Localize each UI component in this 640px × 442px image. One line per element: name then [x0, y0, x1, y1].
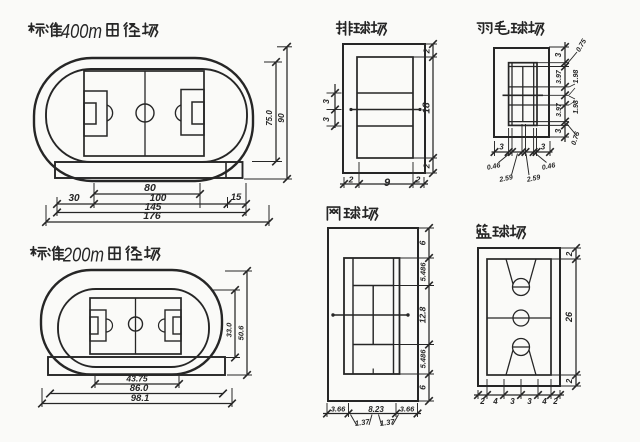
svg-text:1.37: 1.37	[379, 417, 396, 428]
svg-text:3.97: 3.97	[556, 102, 563, 117]
svg-text:1.37: 1.37	[354, 417, 371, 428]
svg-text:30: 30	[68, 193, 80, 204]
svg-text:2: 2	[552, 397, 558, 406]
svg-text:3: 3	[499, 143, 504, 152]
svg-text:3: 3	[321, 117, 331, 122]
svg-text:3.97: 3.97	[556, 69, 563, 84]
svg-text:176: 176	[143, 210, 161, 222]
svg-text:26: 26	[564, 311, 574, 323]
svg-text:2: 2	[348, 175, 354, 185]
svg-text:2: 2	[415, 175, 421, 185]
svg-text:12.8: 12.8	[418, 306, 428, 323]
svg-text:8.23: 8.23	[368, 405, 384, 414]
svg-text:1.98: 1.98	[573, 100, 580, 114]
svg-text:98.1: 98.1	[131, 393, 150, 404]
svg-text:3: 3	[321, 99, 331, 104]
svg-text:1.98: 1.98	[573, 70, 580, 84]
svg-text:3: 3	[554, 52, 563, 57]
svg-text:3: 3	[527, 397, 532, 406]
svg-text:2.59: 2.59	[498, 174, 514, 184]
svg-text:2.59: 2.59	[525, 174, 541, 184]
svg-text:18: 18	[422, 102, 433, 114]
svg-text:43.75: 43.75	[125, 374, 148, 384]
svg-text:5.486: 5.486	[419, 262, 428, 282]
svg-text:75.0: 75.0	[265, 110, 274, 126]
svg-text:6: 6	[418, 385, 428, 390]
svg-text:4: 4	[541, 397, 547, 406]
svg-text:6: 6	[418, 240, 428, 245]
svg-text:0.75: 0.75	[571, 131, 582, 146]
svg-text:2: 2	[565, 251, 574, 257]
svg-text:2: 2	[479, 397, 485, 406]
svg-text:0.46: 0.46	[541, 162, 556, 172]
svg-text:3: 3	[510, 397, 515, 406]
svg-text:90: 90	[276, 113, 286, 123]
svg-text:3.66: 3.66	[400, 405, 415, 414]
svg-text:33.0: 33.0	[225, 322, 234, 337]
svg-text:2: 2	[422, 48, 432, 54]
svg-text:3: 3	[541, 143, 546, 152]
svg-text:2: 2	[565, 378, 574, 384]
svg-text:200m: 200m	[62, 245, 104, 267]
svg-text:0.75: 0.75	[575, 38, 588, 53]
svg-text:9: 9	[384, 177, 391, 189]
svg-text:50.6: 50.6	[237, 325, 246, 340]
svg-text:15: 15	[231, 192, 242, 203]
svg-text:4: 4	[492, 397, 498, 406]
svg-text:5.486: 5.486	[419, 349, 428, 369]
svg-text:0.46: 0.46	[486, 162, 501, 172]
svg-text:2: 2	[422, 163, 432, 169]
svg-text:400m: 400m	[61, 21, 102, 43]
svg-text:3.66: 3.66	[331, 405, 346, 414]
svg-text:3: 3	[554, 128, 563, 133]
